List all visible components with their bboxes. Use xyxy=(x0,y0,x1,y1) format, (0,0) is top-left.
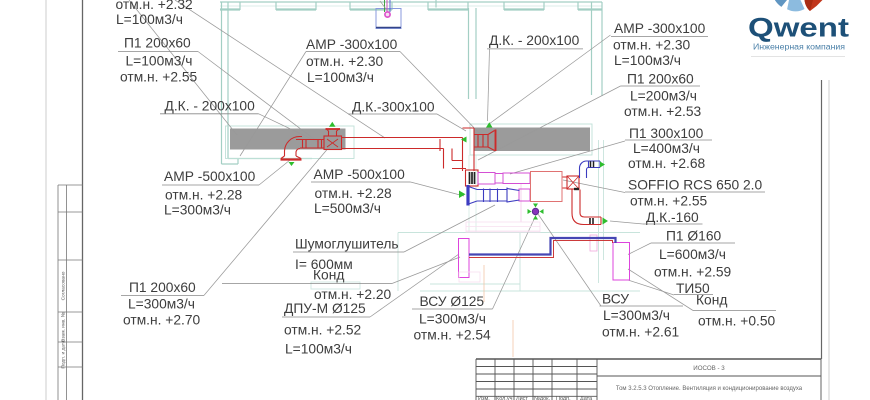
svg-text:L=300м3/ч: L=300м3/ч xyxy=(603,308,670,323)
svg-text:SOFFIO RCS 650 2.0: SOFFIO RCS 650 2.0 xyxy=(628,178,763,193)
svg-text:Подп.: Подп. xyxy=(556,396,571,400)
svg-text:отм.н. +2.20: отм.н. +2.20 xyxy=(314,287,392,302)
svg-text:АМР -300x100: АМР -300x100 xyxy=(614,21,706,36)
svg-text:отм.н. +2.68: отм.н. +2.68 xyxy=(628,156,706,171)
svg-text:отм.н. +2.70: отм.н. +2.70 xyxy=(123,313,201,328)
svg-text:П1 200x60: П1 200x60 xyxy=(124,36,191,51)
svg-text:L=300м3/ч: L=300м3/ч xyxy=(419,312,486,327)
svg-text:Кол.уч: Кол.уч xyxy=(496,396,513,400)
svg-text:отм.н. +2.28: отм.н. +2.28 xyxy=(315,186,393,201)
svg-text:отм.н. +2.59: отм.н. +2.59 xyxy=(654,265,732,280)
svg-text:отм.н. +2.61: отм.н. +2.61 xyxy=(602,325,679,340)
svg-text:L=100м3/ч: L=100м3/ч xyxy=(614,53,681,68)
svg-text:Д.К. - 200x100: Д.К. - 200x100 xyxy=(489,33,580,48)
svg-text:L=200м3/ч: L=200м3/ч xyxy=(630,89,697,104)
svg-text:Инженерная компания: Инженерная компания xyxy=(753,43,845,52)
svg-text:Д.К.-160: Д.К.-160 xyxy=(646,210,699,225)
svg-text:Конд: Конд xyxy=(313,268,344,283)
svg-text:Изм.: Изм. xyxy=(478,396,490,400)
svg-text:ДПУ-М Ø125: ДПУ-М Ø125 xyxy=(284,301,366,316)
svg-text:L=300м3/ч: L=300м3/ч xyxy=(164,203,231,218)
svg-text:Лист: Лист xyxy=(516,396,528,400)
svg-text:L=600м3/ч: L=600м3/ч xyxy=(659,247,726,262)
svg-text:Том 3.2.5.3 Отопление. Вентиля: Том 3.2.5.3 Отопление. Вентиляция и конд… xyxy=(616,386,803,392)
svg-text:Шумоглушитель: Шумоглушитель xyxy=(295,237,399,252)
svg-text:отм.н. +2.55: отм.н. +2.55 xyxy=(120,70,198,85)
svg-text:П1 Ø160: П1 Ø160 xyxy=(666,229,722,244)
svg-text:L=100м3/ч: L=100м3/ч xyxy=(307,70,374,85)
svg-text:L=300м3/ч: L=300м3/ч xyxy=(128,297,195,312)
svg-text:Qwent: Qwent xyxy=(748,13,849,43)
svg-text:отм.н. +2.30: отм.н. +2.30 xyxy=(613,38,691,53)
svg-text:АМР -500x100: АМР -500x100 xyxy=(164,169,256,184)
svg-text:Д.К.-300x100: Д.К.-300x100 xyxy=(352,100,435,115)
svg-text:отм.н. +2.32: отм.н. +2.32 xyxy=(116,0,193,12)
svg-text:L=500м3/ч: L=500м3/ч xyxy=(314,201,381,216)
svg-text:L=100м3/ч: L=100м3/ч xyxy=(126,54,193,69)
svg-text:отм.н. +2.28: отм.н. +2.28 xyxy=(165,188,243,203)
svg-text:Дата: Дата xyxy=(580,396,593,400)
svg-text:отм.н. +0.50: отм.н. +0.50 xyxy=(698,314,776,329)
svg-text:№док.: №док. xyxy=(534,396,551,400)
svg-text:Подп. и дата: Подп. и дата xyxy=(61,340,67,369)
svg-text:Взам. инв. №: Взам. инв. № xyxy=(61,312,67,342)
svg-text:Д.К. - 200x100: Д.К. - 200x100 xyxy=(165,99,256,114)
svg-text:отм.н. +2.55: отм.н. +2.55 xyxy=(630,194,708,209)
svg-text:ИОСОВ - 3: ИОСОВ - 3 xyxy=(693,365,725,372)
svg-text:Согласовано: Согласовано xyxy=(61,271,67,300)
svg-text:отм.н. +2.52: отм.н. +2.52 xyxy=(284,323,361,338)
svg-text:ВСУ: ВСУ xyxy=(602,292,629,307)
svg-text:ВСУ Ø125: ВСУ Ø125 xyxy=(420,294,485,309)
svg-text:отм.н. +2.54: отм.н. +2.54 xyxy=(414,328,492,343)
svg-text:отм.н. +2.53: отм.н. +2.53 xyxy=(624,104,702,119)
svg-text:АМР -500x100: АМР -500x100 xyxy=(314,167,406,182)
svg-text:П1 300x100: П1 300x100 xyxy=(629,126,704,141)
svg-text:П1 200x60: П1 200x60 xyxy=(627,72,694,87)
svg-text:П1 200x60: П1 200x60 xyxy=(129,280,196,295)
svg-text:отм.н. +2.30: отм.н. +2.30 xyxy=(306,54,384,69)
svg-text:АМР -300x100: АМР -300x100 xyxy=(306,37,398,52)
svg-text:L=100м3/ч: L=100м3/ч xyxy=(116,12,183,27)
svg-text:L=100м3/ч: L=100м3/ч xyxy=(285,342,352,357)
svg-text:L=400м3/ч: L=400м3/ч xyxy=(633,141,700,156)
